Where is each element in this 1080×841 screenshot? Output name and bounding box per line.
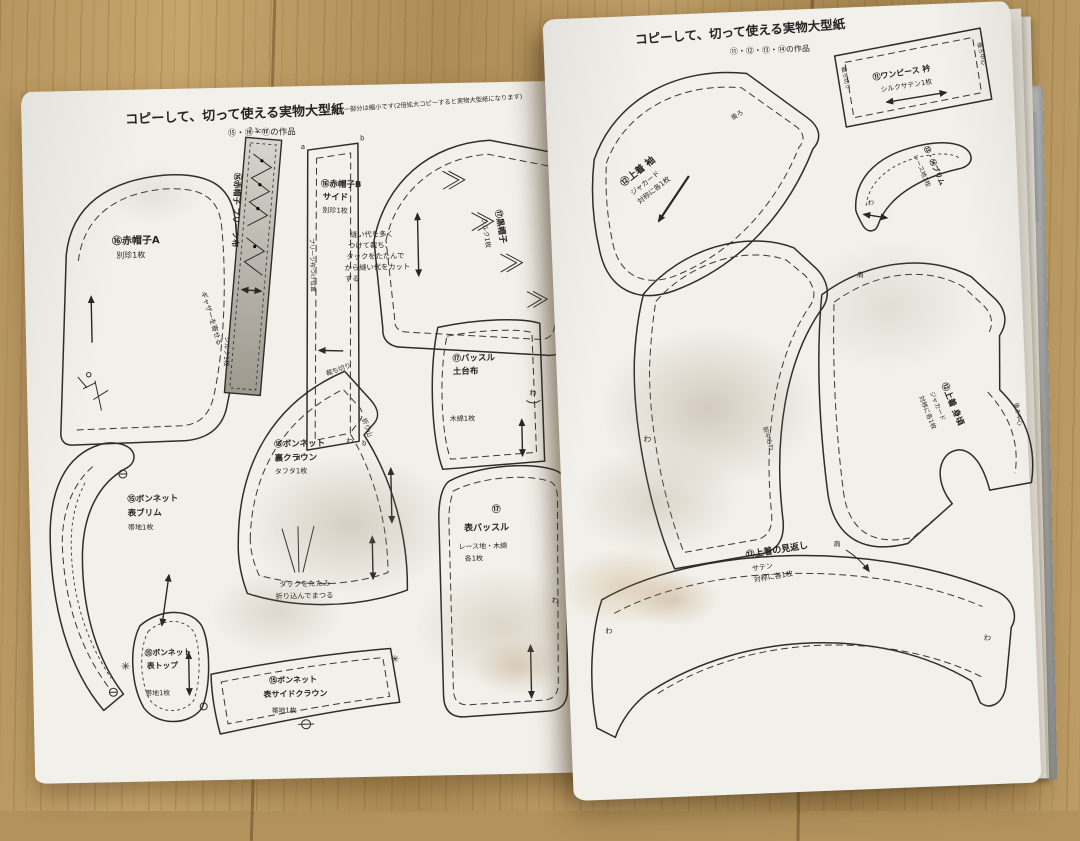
fold-line-mark: 折り山: [360, 417, 375, 438]
piece-jacket-facing: わ わ ⑫上着の見返し サテン 対称に各1枚 肩: [587, 531, 1019, 739]
piece-part: 表ブリム: [127, 507, 163, 519]
page-works: ⑪・⑫・⑬・⑭の作品: [730, 43, 810, 56]
page-title: コピーして、切って使える実物大型紙: [125, 102, 344, 128]
fold-curve: [526, 400, 540, 403]
right-pattern-page: コピーして、切って使える実物大型紙 ⑪・⑫・⑬・⑭の作品 ⑫上着 袖 ジャカード…: [542, 1, 1041, 801]
piece-label: ⑮ボンネット: [269, 674, 317, 685]
note-line: 縫い代を多く: [350, 229, 394, 239]
seam-line: [384, 153, 567, 343]
corner-letter: b: [360, 134, 365, 142]
piece-label: ⑮ボンネット: [127, 493, 178, 505]
piece-bonnet-top: ✳ ⑮ボンネット 表トップ 帯地1枚: [120, 612, 210, 723]
seam-line: [71, 188, 227, 430]
note-line: つけて裁ち、: [348, 240, 392, 250]
right-page-drawing: コピーして、切って使える実物大型紙 ⑪・⑫・⑬・⑭の作品 ⑫上着 袖 ジャカード…: [542, 1, 1041, 801]
tuck-note: タックをたたみ: [279, 579, 330, 589]
piece-outline: [438, 465, 571, 718]
piece-outline: [431, 319, 545, 470]
grain-arrow: [887, 92, 946, 102]
fold-mark: わ: [605, 626, 613, 635]
piece-label: ⑫上着の見返し: [745, 539, 809, 561]
seam-line: [613, 566, 982, 622]
piece-brim: わ ⑬・⑭ブリム レース地1枚: [846, 136, 982, 233]
star-mark: ✳: [121, 660, 130, 673]
piece-dress-skirt: わ 前中心わ: [629, 238, 838, 570]
piece-part: 土台布: [453, 366, 479, 378]
piece-label: ⑮ボンネット: [144, 647, 191, 658]
piece-front-bustle: ⑰ 表バッスル レース地・木綿 各1枚 わ: [438, 465, 571, 718]
piece-bonnet-front-brim: ⑮ボンネット 表ブリム 帯地1枚: [48, 441, 182, 711]
piece-number: ⑰: [492, 503, 501, 515]
seam-line-2: [656, 639, 981, 694]
piece-outline: [235, 370, 408, 606]
piece-red-hat-b-side: a b d b ⑯赤帽子B サイド 別珍1枚 プリーツ布つけ位置: [294, 133, 374, 464]
piece-label: ⑯赤帽子A: [112, 233, 160, 247]
corner-letter: b: [362, 439, 367, 447]
piece-outline: [55, 173, 241, 445]
seam-line: [602, 84, 808, 282]
pleat-marks: [443, 169, 548, 309]
shoulder-mark: 肩: [857, 270, 864, 279]
piece-outline: [846, 136, 982, 233]
grain-arrow: [91, 297, 92, 343]
piece-label: ⑰黒帽子: [492, 209, 508, 245]
piece-fabric: 帯地1枚: [272, 705, 297, 715]
piece-fabric: サテン: [752, 562, 774, 573]
grain-arrow: [372, 537, 373, 579]
piece-pleats-strip: 2.3cm ⑯赤帽子 プリーツ布 シルク1枚: [214, 126, 282, 396]
piece-red-hat-a: ⑯赤帽子A 別珍1枚 ギャザーを寄せる: [55, 173, 241, 445]
shoulder-mark: 肩: [834, 539, 841, 548]
fold-mark: わ: [551, 596, 559, 605]
scale-note: グレー部分は縮小です(2倍拡大コピーすると実物大型紙になります): [331, 92, 523, 115]
fold-mark: わ: [346, 437, 353, 445]
piece-fabric: 木綿1枚: [450, 414, 476, 424]
piece-bonnet-back-crown: 裁ち切り 折り山 ⑮ボンネット 裏クラウン タフタ1枚 わ タックをたたみ 折り…: [234, 359, 407, 606]
edge-mark: 後ろ中心: [975, 42, 987, 67]
piece-outline: [834, 28, 992, 127]
piece-label: ⑰バッスル: [452, 352, 495, 364]
page-title: コピーして、切って使える実物大型紙: [635, 16, 847, 47]
grain-arrow: [189, 653, 190, 695]
piece-fabric: 各1枚: [465, 553, 484, 562]
piece-fabric: 帯地1枚: [128, 522, 154, 532]
piece-part: 裏クラウン: [273, 452, 317, 464]
edge-mark: 裁ち切り: [840, 66, 852, 90]
piece-fabric: レース地・木綿: [458, 541, 507, 551]
left-pattern-page: コピーして、切って使える実物大型紙 ⑮・⑯・⑰の作品 グレー部分は縮小です(2倍…: [21, 80, 607, 784]
shoulder-arrow: [846, 549, 869, 572]
corner-letter: a: [301, 143, 305, 151]
sprig-drawing: [87, 372, 91, 376]
grain-arrow: [161, 575, 170, 625]
fold-mark: わ: [983, 633, 991, 642]
center-front-mark: 前中心わ: [761, 425, 776, 451]
grain-arrow: [391, 468, 392, 522]
gather-mark: ギャザーを寄せる: [199, 290, 224, 346]
fold-arrow: [864, 210, 887, 222]
back-mark: 後ろ: [729, 108, 745, 122]
piece-part: サイド: [323, 192, 349, 203]
fold-mark: わ: [867, 198, 875, 207]
sprig-drawing: [78, 376, 109, 411]
piece-fabric: タフタ1枚: [275, 466, 308, 476]
fold-mark: わ: [529, 388, 537, 397]
piece-outline: [629, 238, 838, 570]
piece-part: 表トップ: [146, 660, 179, 671]
piece-jacket-sleeve: ⑫上着 袖 ジャカード 対称に各1枚 後ろ: [588, 69, 825, 298]
piece-bustle-base: ⑰バッスル 土台布 木綿1枚 わ: [431, 319, 545, 470]
center-back-mark: 後ろ中心: [1012, 402, 1024, 426]
seam-line: [645, 253, 824, 554]
piece-fabric: 別珍1枚: [322, 205, 348, 215]
fold-mark: わ: [643, 435, 651, 444]
piece-label: ⑮ボンネット: [274, 438, 325, 450]
piece-fabric: 帯地1枚: [145, 688, 170, 698]
piece-dress-collar: ⑪ワンピース 衿 シルクサテン1枚 裁ち切り 後ろ中心: [834, 28, 994, 127]
seam-line: [448, 476, 562, 705]
grain-arrow: [319, 350, 343, 351]
piece-label: 表バッスル: [463, 521, 509, 534]
piece-label-group: ⑫上着 袖 ジャカード 対称に各1枚: [618, 154, 673, 207]
grain-arrow: [522, 420, 523, 456]
piece-label-group: ⑫上着の見返し サテン 対称に各1枚: [745, 539, 813, 585]
tuck-lines: [282, 526, 315, 573]
tuck-note: 折り込んでまつる: [275, 591, 333, 601]
piece-fabric: 別珍1枚: [116, 249, 145, 260]
piece-fabric: シルク1枚: [222, 336, 232, 367]
grain-arrow: [531, 646, 532, 698]
piece-part: 表サイドクラウン: [262, 688, 327, 699]
note-line: タックをたたんで: [346, 251, 404, 261]
note-line: する: [345, 274, 360, 283]
left-page-drawing: コピーして、切って使える実物大型紙 ⑮・⑯・⑰の作品 グレー部分は縮小です(2倍…: [21, 80, 607, 784]
star-mark: ✳: [391, 654, 400, 665]
placement-mark: プリーツ布つけ位置: [308, 238, 318, 292]
piece-label: ⑯赤帽子B: [321, 178, 362, 190]
piece-outline: [587, 547, 1018, 739]
note-line: から縫い代をカット: [344, 262, 410, 272]
piece-bonnet-side-crown: ⑮ボンネット 表サイドクラウン 帯地1枚 ✳: [211, 648, 401, 734]
grain-arrow: [417, 214, 418, 276]
piece-jacket-bodice: ⑫上着 身頃 ジャカード 対称に各1枚 肩 後ろ中心: [814, 258, 1036, 549]
